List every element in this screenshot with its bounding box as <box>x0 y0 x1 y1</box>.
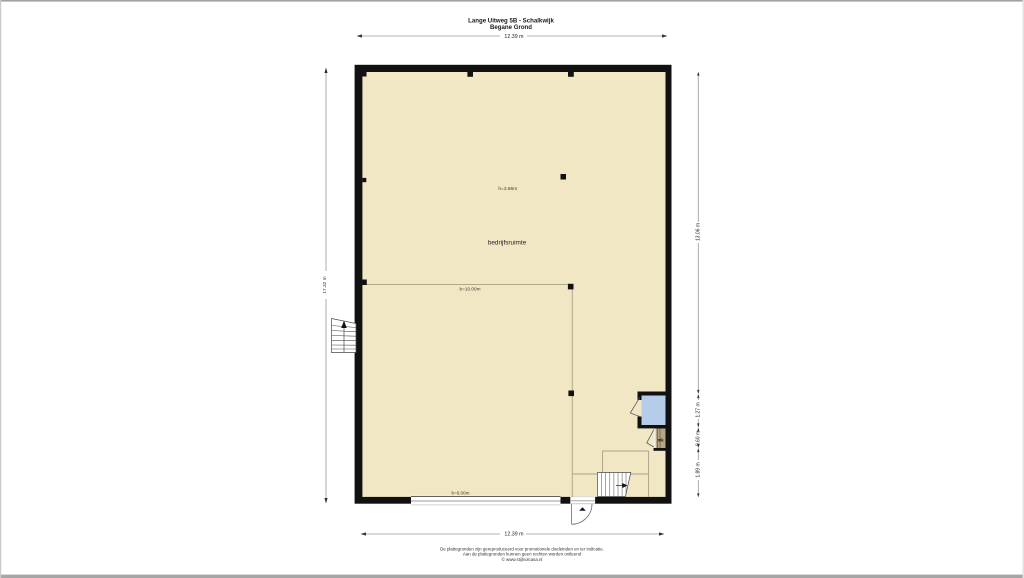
svg-text:1.27 m: 1.27 m <box>696 402 702 417</box>
svg-text:mk: mk <box>658 437 665 442</box>
svg-text:17.32 m: 17.32 m <box>322 276 328 293</box>
svg-text:h=3.86m: h=3.86m <box>498 186 517 192</box>
svg-text:Begane Grond: Begane Grond <box>490 24 532 31</box>
svg-text:bedrijfsruimte: bedrijfsruimte <box>488 240 527 247</box>
svg-text:12.39 m: 12.39 m <box>504 532 524 538</box>
svg-text:© www.stijlvolcasa.nl: © www.stijlvolcasa.nl <box>502 557 543 562</box>
svg-text:b=10.00m: b=10.00m <box>460 286 481 291</box>
svg-text:12.39 m: 12.39 m <box>504 34 524 40</box>
svg-text:1.89 m: 1.89 m <box>696 462 702 477</box>
svg-text:13.06 m: 13.06 m <box>696 223 702 241</box>
svg-text:b=6.00m: b=6.00m <box>451 490 469 495</box>
svg-text:0.60 m: 0.60 m <box>696 431 702 446</box>
